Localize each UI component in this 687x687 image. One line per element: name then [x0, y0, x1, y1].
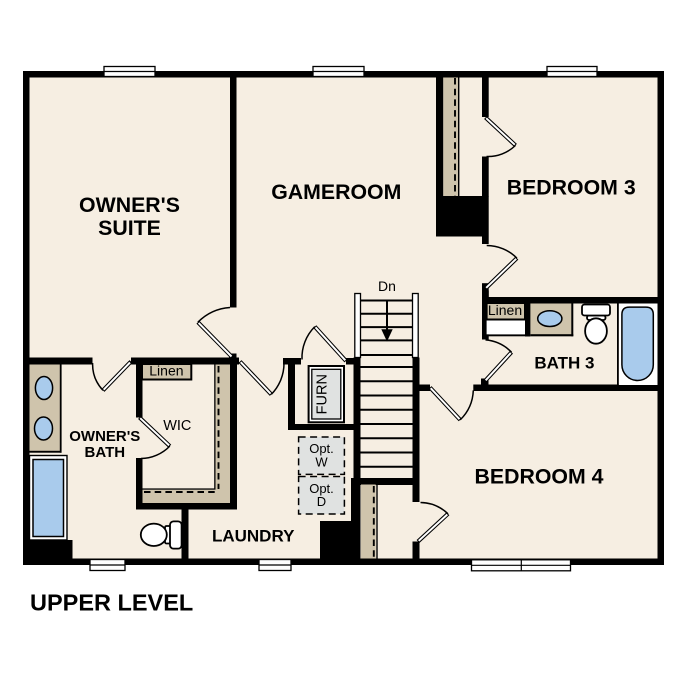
svg-text:Dn: Dn	[378, 278, 396, 294]
svg-text:FURN: FURN	[314, 374, 330, 414]
svg-text:WIC: WIC	[163, 418, 191, 434]
svg-text:GAMEROOM: GAMEROOM	[271, 180, 401, 204]
svg-text:SUITE: SUITE	[98, 216, 161, 240]
svg-text:Linen: Linen	[488, 302, 522, 318]
svg-text:BEDROOM 3: BEDROOM 3	[507, 176, 636, 200]
svg-text:Linen: Linen	[149, 363, 183, 379]
svg-text:BATH 3: BATH 3	[534, 353, 594, 372]
svg-text:UPPER LEVEL: UPPER LEVEL	[30, 590, 193, 616]
svg-text:D: D	[317, 494, 326, 509]
svg-text:OWNER'S: OWNER'S	[69, 428, 140, 445]
svg-text:BEDROOM 4: BEDROOM 4	[475, 465, 604, 489]
svg-text:BATH: BATH	[85, 444, 126, 461]
svg-text:LAUNDRY: LAUNDRY	[212, 526, 295, 545]
svg-text:OWNER'S: OWNER'S	[79, 193, 180, 217]
svg-text:W: W	[315, 455, 328, 470]
